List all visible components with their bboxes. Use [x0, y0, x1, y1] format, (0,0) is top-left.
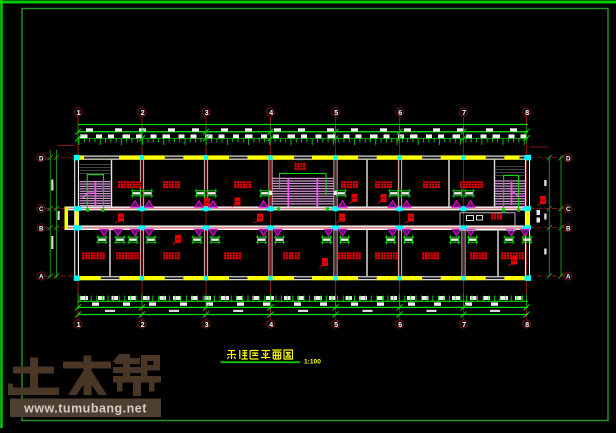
svg-text:4: 4 — [269, 320, 273, 329]
svg-text:C: C — [39, 206, 44, 213]
svg-text:8: 8 — [525, 320, 529, 329]
svg-text:1: 1 — [77, 320, 81, 329]
svg-text:A: A — [39, 274, 44, 281]
svg-text:2: 2 — [141, 320, 145, 329]
svg-text:5: 5 — [334, 320, 338, 329]
svg-text:5: 5 — [334, 108, 338, 117]
svg-text:4: 4 — [269, 108, 273, 117]
svg-text:6: 6 — [398, 108, 402, 117]
svg-text:B: B — [39, 225, 44, 232]
svg-text:1: 1 — [77, 108, 81, 117]
svg-text:www.tumubang.net: www.tumubang.net — [23, 402, 147, 416]
svg-text:A: A — [566, 274, 571, 281]
svg-text:7: 7 — [462, 108, 466, 117]
svg-text:D: D — [566, 155, 571, 162]
svg-text:8: 8 — [525, 108, 529, 117]
svg-text:3: 3 — [205, 108, 209, 117]
svg-text:B: B — [566, 225, 571, 232]
svg-text:2: 2 — [141, 108, 145, 117]
svg-text:3: 3 — [205, 320, 209, 329]
svg-text:1:100: 1:100 — [304, 358, 321, 365]
svg-text:7: 7 — [462, 320, 466, 329]
svg-text:D: D — [39, 155, 44, 162]
svg-text:C: C — [566, 206, 571, 213]
svg-text:6: 6 — [398, 320, 402, 329]
